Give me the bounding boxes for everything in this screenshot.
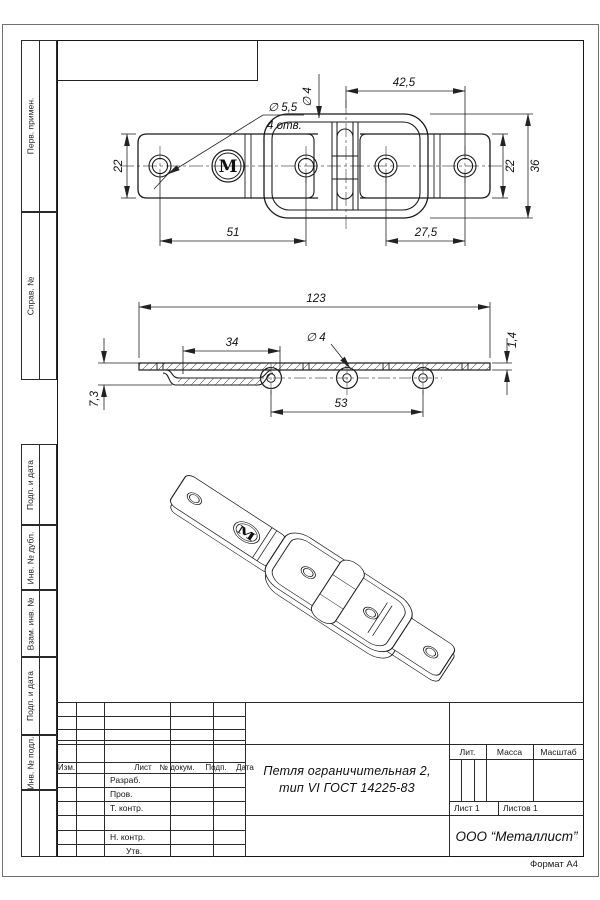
svg-text:∅ 5,5: ∅ 5,5	[268, 102, 298, 114]
svg-text:53: 53	[335, 398, 348, 410]
margin-label: Инв. № дубл.	[26, 531, 36, 584]
margin-label: Подп. и дата	[26, 459, 36, 509]
format-note: Формат А4	[440, 859, 578, 870]
margin-box-vzam-inv: Взам. инв. №	[21, 590, 57, 657]
svg-text:1,4: 1,4	[507, 332, 519, 348]
svg-text:22: 22	[505, 159, 517, 173]
margin-box-podp-data-1: Подп. и дата	[21, 444, 57, 525]
rev-header-izm: Изм.	[57, 762, 76, 773]
scale-label: Масштаб	[533, 745, 584, 758]
margin-box-podp-data-2: Подп. и дата	[21, 657, 57, 735]
margin-box-empty	[21, 790, 57, 857]
svg-text:22: 22	[113, 159, 125, 173]
svg-text:4 отв.: 4 отв.	[267, 120, 302, 132]
isometric-view: M	[159, 460, 468, 694]
sign-row-tkontr: Т. контр.	[110, 802, 168, 814]
svg-text:123: 123	[306, 293, 326, 305]
rev-header-podp: Подп.	[202, 762, 230, 773]
margin-box-perv-primen: Перв. примен.	[21, 40, 57, 212]
logo-letter: M	[219, 157, 238, 177]
margin-label: Подп. и дата	[26, 671, 36, 721]
sign-row-razrab: Разраб.	[110, 774, 168, 786]
margin-label: Инв. № подл.	[26, 736, 36, 789]
mass-label: Масса	[486, 745, 533, 758]
margin-box-inv-dubl: Инв. № дубл.	[21, 525, 57, 590]
svg-text:27,5: 27,5	[414, 227, 438, 239]
margin-box-sprav-no: Справ. №	[21, 212, 57, 380]
top-view-dimensions: 42,5 ∅ 4 ∅ 5,5 4 отв. 22 22 36	[113, 74, 542, 246]
margin-box-inv-podl: Инв. № подл.	[21, 735, 57, 790]
sheets-total: Листов 1	[503, 802, 581, 814]
margin-label: Взам. инв. №	[26, 597, 36, 650]
margin-label: Перв. примен.	[26, 98, 36, 155]
svg-text:7,3: 7,3	[89, 390, 101, 407]
side-view	[139, 362, 490, 395]
side-view-dimensions: 123 34 ∅ 4 53 7,3 1,4	[89, 293, 519, 417]
svg-text:34: 34	[226, 337, 239, 349]
drawing-sheet: Перв. примен. Справ. № Подп. и дата Инв.…	[0, 0, 600, 900]
sign-row-prov: Пров.	[110, 788, 168, 800]
svg-text:36: 36	[530, 159, 542, 172]
rev-header-list: Лист	[128, 762, 158, 773]
lit-label: Лит.	[449, 745, 486, 758]
drawing-views: M 42,5 ∅ 4 ∅ 5,5 4 отв. 22	[57, 40, 585, 702]
titleblock-line	[57, 702, 584, 703]
top-view: M	[120, 100, 512, 232]
margin-label: Справ. №	[26, 277, 36, 316]
sign-row-nkontr: Н. контр.	[110, 831, 168, 843]
sign-row-utv: Утв.	[126, 845, 184, 856]
sheet-no: Лист 1	[454, 802, 496, 814]
document-title: Петля ограничительная 2, тип VI ГОСТ 142…	[248, 746, 446, 813]
svg-text:42,5: 42,5	[393, 77, 416, 89]
company-name: ООО “Металлист”	[450, 817, 583, 856]
svg-text:51: 51	[227, 227, 240, 239]
svg-text:∅ 4: ∅ 4	[302, 87, 314, 107]
svg-text:∅ 4: ∅ 4	[306, 332, 326, 344]
rev-header-dokum: № докум.	[156, 762, 198, 773]
